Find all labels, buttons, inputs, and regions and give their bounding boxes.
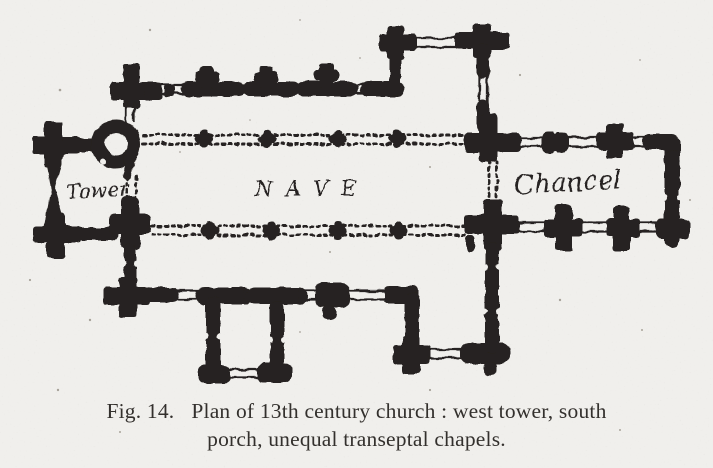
nave-label: NAVE — [254, 177, 370, 201]
tower-label: Tower — [66, 176, 131, 203]
scanned-book-page: Tower NAVE Chancel Fig. 14. Plan of 13th… — [0, 0, 713, 468]
caption-text-line2: porch, unequal transeptal chapels. — [0, 425, 713, 453]
chancel-label: Chancel — [514, 165, 623, 201]
caption-line-1: Fig. 14. Plan of 13th century church : w… — [0, 397, 713, 425]
figure-number: Fig. 14. — [106, 397, 174, 425]
figure-caption: Fig. 14. Plan of 13th century church : w… — [0, 397, 713, 453]
caption-text-line1: Plan of 13th century church : west tower… — [191, 397, 606, 425]
